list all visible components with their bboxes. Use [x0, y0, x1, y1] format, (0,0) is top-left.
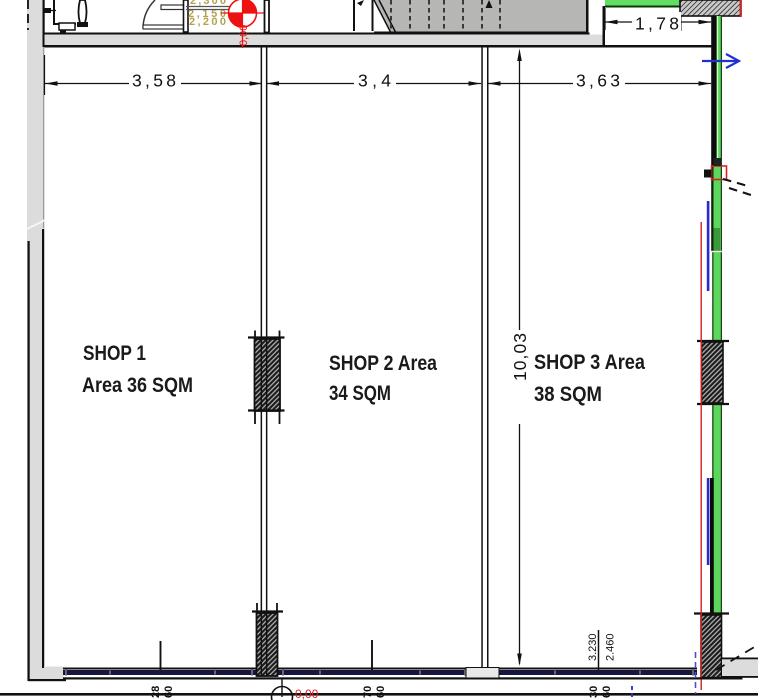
svg-text:3,63: 3,63	[576, 71, 620, 91]
svg-text:30: 30	[588, 686, 600, 698]
svg-text:2.460: 2.460	[605, 633, 617, 661]
svg-text:SHOP 2 Area: SHOP 2 Area	[329, 352, 437, 375]
svg-text:10,03: 10,03	[510, 333, 530, 381]
svg-text:1,78: 1,78	[635, 14, 679, 34]
svg-text:3.230: 3.230	[587, 633, 599, 661]
svg-text:60: 60	[375, 686, 387, 698]
svg-text:70: 70	[362, 686, 374, 698]
svg-text:28: 28	[150, 686, 162, 698]
svg-text:SHOP 1: SHOP 1	[83, 342, 146, 365]
svg-text:3,4: 3,4	[358, 71, 391, 91]
svg-text:2,200: 2,200	[189, 16, 226, 28]
svg-text:3,58: 3,58	[132, 71, 176, 91]
svg-text:0,00: 0,00	[295, 687, 319, 700]
svg-text:0,00: 0,00	[238, 25, 250, 46]
svg-text:SHOP 3 Area: SHOP 3 Area	[534, 351, 645, 374]
svg-text:38 SQM: 38 SQM	[534, 383, 602, 406]
svg-text:34 SQM: 34 SQM	[329, 382, 391, 405]
svg-text:60: 60	[163, 686, 175, 698]
svg-text:Area 36 SQM: Area 36 SQM	[82, 374, 193, 397]
svg-text:60: 60	[601, 686, 613, 698]
